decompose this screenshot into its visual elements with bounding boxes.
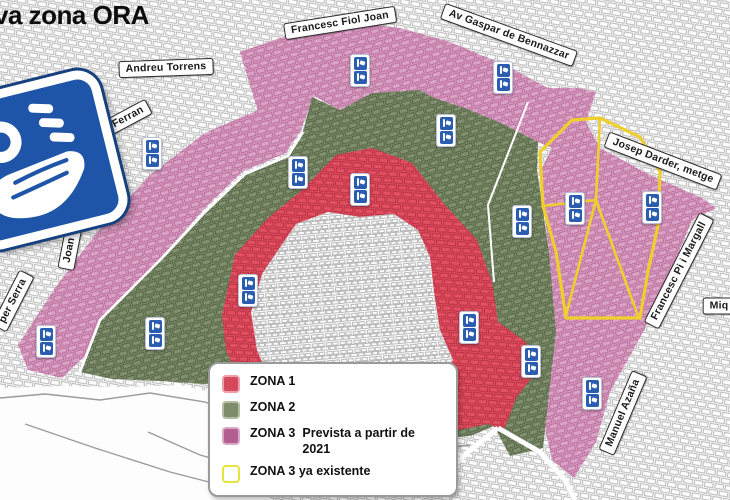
ora-mini-sign-icon (242, 291, 255, 304)
legend-label-zona3-existente: ZONA 3 ya existente (250, 464, 370, 480)
ora-sign-marker (459, 311, 479, 344)
ora-sign-marker (238, 274, 258, 307)
ora-mini-sign-icon (463, 314, 476, 327)
ora-mini-sign-icon (569, 209, 582, 222)
ora-sign-marker (565, 192, 585, 225)
legend-item-zona1: ZONA 1 (222, 374, 448, 393)
street-label-miq-truncated: Miq (703, 298, 730, 315)
legend-swatch-zona3 (222, 427, 240, 445)
ora-mini-sign-icon (497, 64, 510, 77)
legend-swatch-zona2 (222, 401, 240, 419)
legend-label-zona3: ZONA 3Prevista a partir de 2021 (250, 426, 420, 457)
ora-mini-sign-icon (292, 173, 305, 186)
legend-label-zona2: ZONA 2 (250, 400, 295, 416)
ora-mini-sign-icon (146, 140, 159, 153)
ora-mini-sign-icon (516, 208, 529, 221)
legend-item-zona3-prevista: ZONA 3Prevista a partir de 2021 (222, 426, 448, 457)
ora-sign-marker (642, 191, 662, 224)
legend-label-zona3-name: ZONA 3 (250, 426, 295, 440)
ora-mini-sign-icon (646, 194, 659, 207)
ora-sign-marker (36, 325, 56, 358)
legend-label-zona1: ZONA 1 (250, 374, 295, 390)
ora-mini-sign-icon (525, 362, 538, 375)
ora-mini-sign-icon (646, 208, 659, 221)
legend-swatch-zona1 (222, 375, 240, 393)
ora-mini-sign-icon (40, 328, 53, 341)
ora-sign-marker (521, 345, 541, 378)
ora-mini-sign-icon (292, 159, 305, 172)
ora-mini-sign-icon (516, 222, 529, 235)
ora-mini-sign-icon (354, 57, 367, 70)
legend: ZONA 1 ZONA 2 ZONA 3Prevista a partir de… (208, 362, 458, 497)
legend-swatch-zona3-existente (222, 465, 240, 483)
coin-hand-icon (0, 76, 122, 243)
ora-sign-marker (142, 137, 162, 170)
legend-label-zona3-desc: Prevista a partir de 2021 (302, 426, 420, 457)
ora-mini-sign-icon (440, 131, 453, 144)
ora-sign-marker (350, 173, 370, 206)
ora-mini-sign-icon (586, 380, 599, 393)
ora-sign-marker (288, 156, 308, 189)
ora-sign-marker (493, 61, 513, 94)
ora-mini-sign-icon (440, 117, 453, 130)
ora-sign-marker (145, 317, 165, 350)
ora-zones-map-infographic: va zona ORA Andreu TorrensFrancesc Fiol … (0, 0, 730, 500)
ora-mini-sign-icon (242, 277, 255, 290)
street-label-andreu-torrens: Andreu Torrens (118, 58, 213, 78)
ora-mini-sign-icon (354, 71, 367, 84)
ora-sign-marker (350, 54, 370, 87)
ora-sign-marker (582, 377, 602, 410)
ora-mini-sign-icon (149, 320, 162, 333)
ora-mini-sign-icon (586, 394, 599, 407)
ora-mini-sign-icon (354, 190, 367, 203)
ora-mini-sign-icon (497, 78, 510, 91)
legend-item-zona3-existente: ZONA 3 ya existente (222, 464, 448, 483)
ora-sign-marker (512, 205, 532, 238)
ora-mini-sign-icon (463, 328, 476, 341)
ora-mini-sign-icon (40, 342, 53, 355)
ora-sign-marker (436, 114, 456, 147)
ora-mini-sign-icon (149, 334, 162, 347)
ora-mini-sign-icon (354, 176, 367, 189)
ora-mini-sign-icon (569, 195, 582, 208)
page-title: va zona ORA (0, 0, 149, 31)
legend-item-zona2: ZONA 2 (222, 400, 448, 419)
ora-mini-sign-icon (525, 348, 538, 361)
ora-mini-sign-icon (146, 154, 159, 167)
